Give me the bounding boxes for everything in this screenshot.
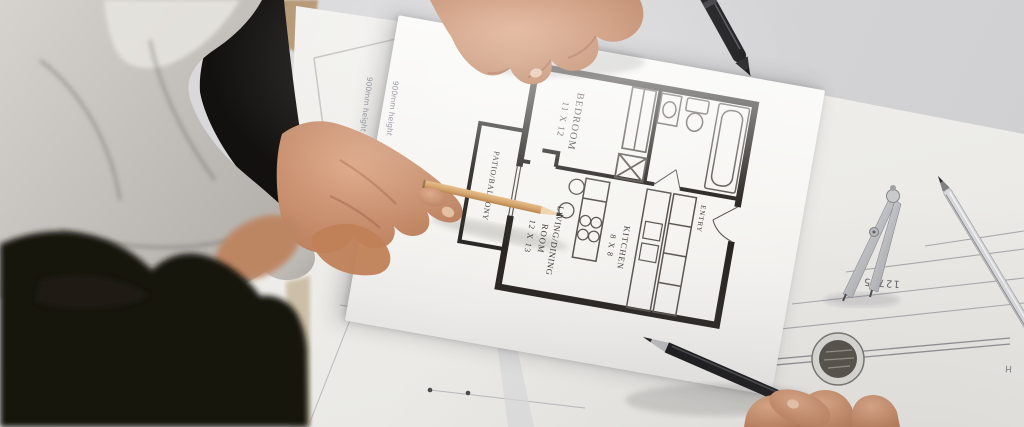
bleedthrough-notes: 900mm height 900mm height xyxy=(359,76,401,136)
pencil-tip xyxy=(556,213,565,218)
bleedthrough-note-1: 900mm height xyxy=(359,76,375,132)
pencil-wood-tip xyxy=(540,206,564,219)
people-over-layer: 900mm height 900mm height xyxy=(0,0,1024,427)
scene-architects-desk: 12785 H xyxy=(0,0,1024,427)
pen-tip-cone xyxy=(641,332,669,352)
bleedthrough-note-2: 900mm height xyxy=(385,80,401,136)
